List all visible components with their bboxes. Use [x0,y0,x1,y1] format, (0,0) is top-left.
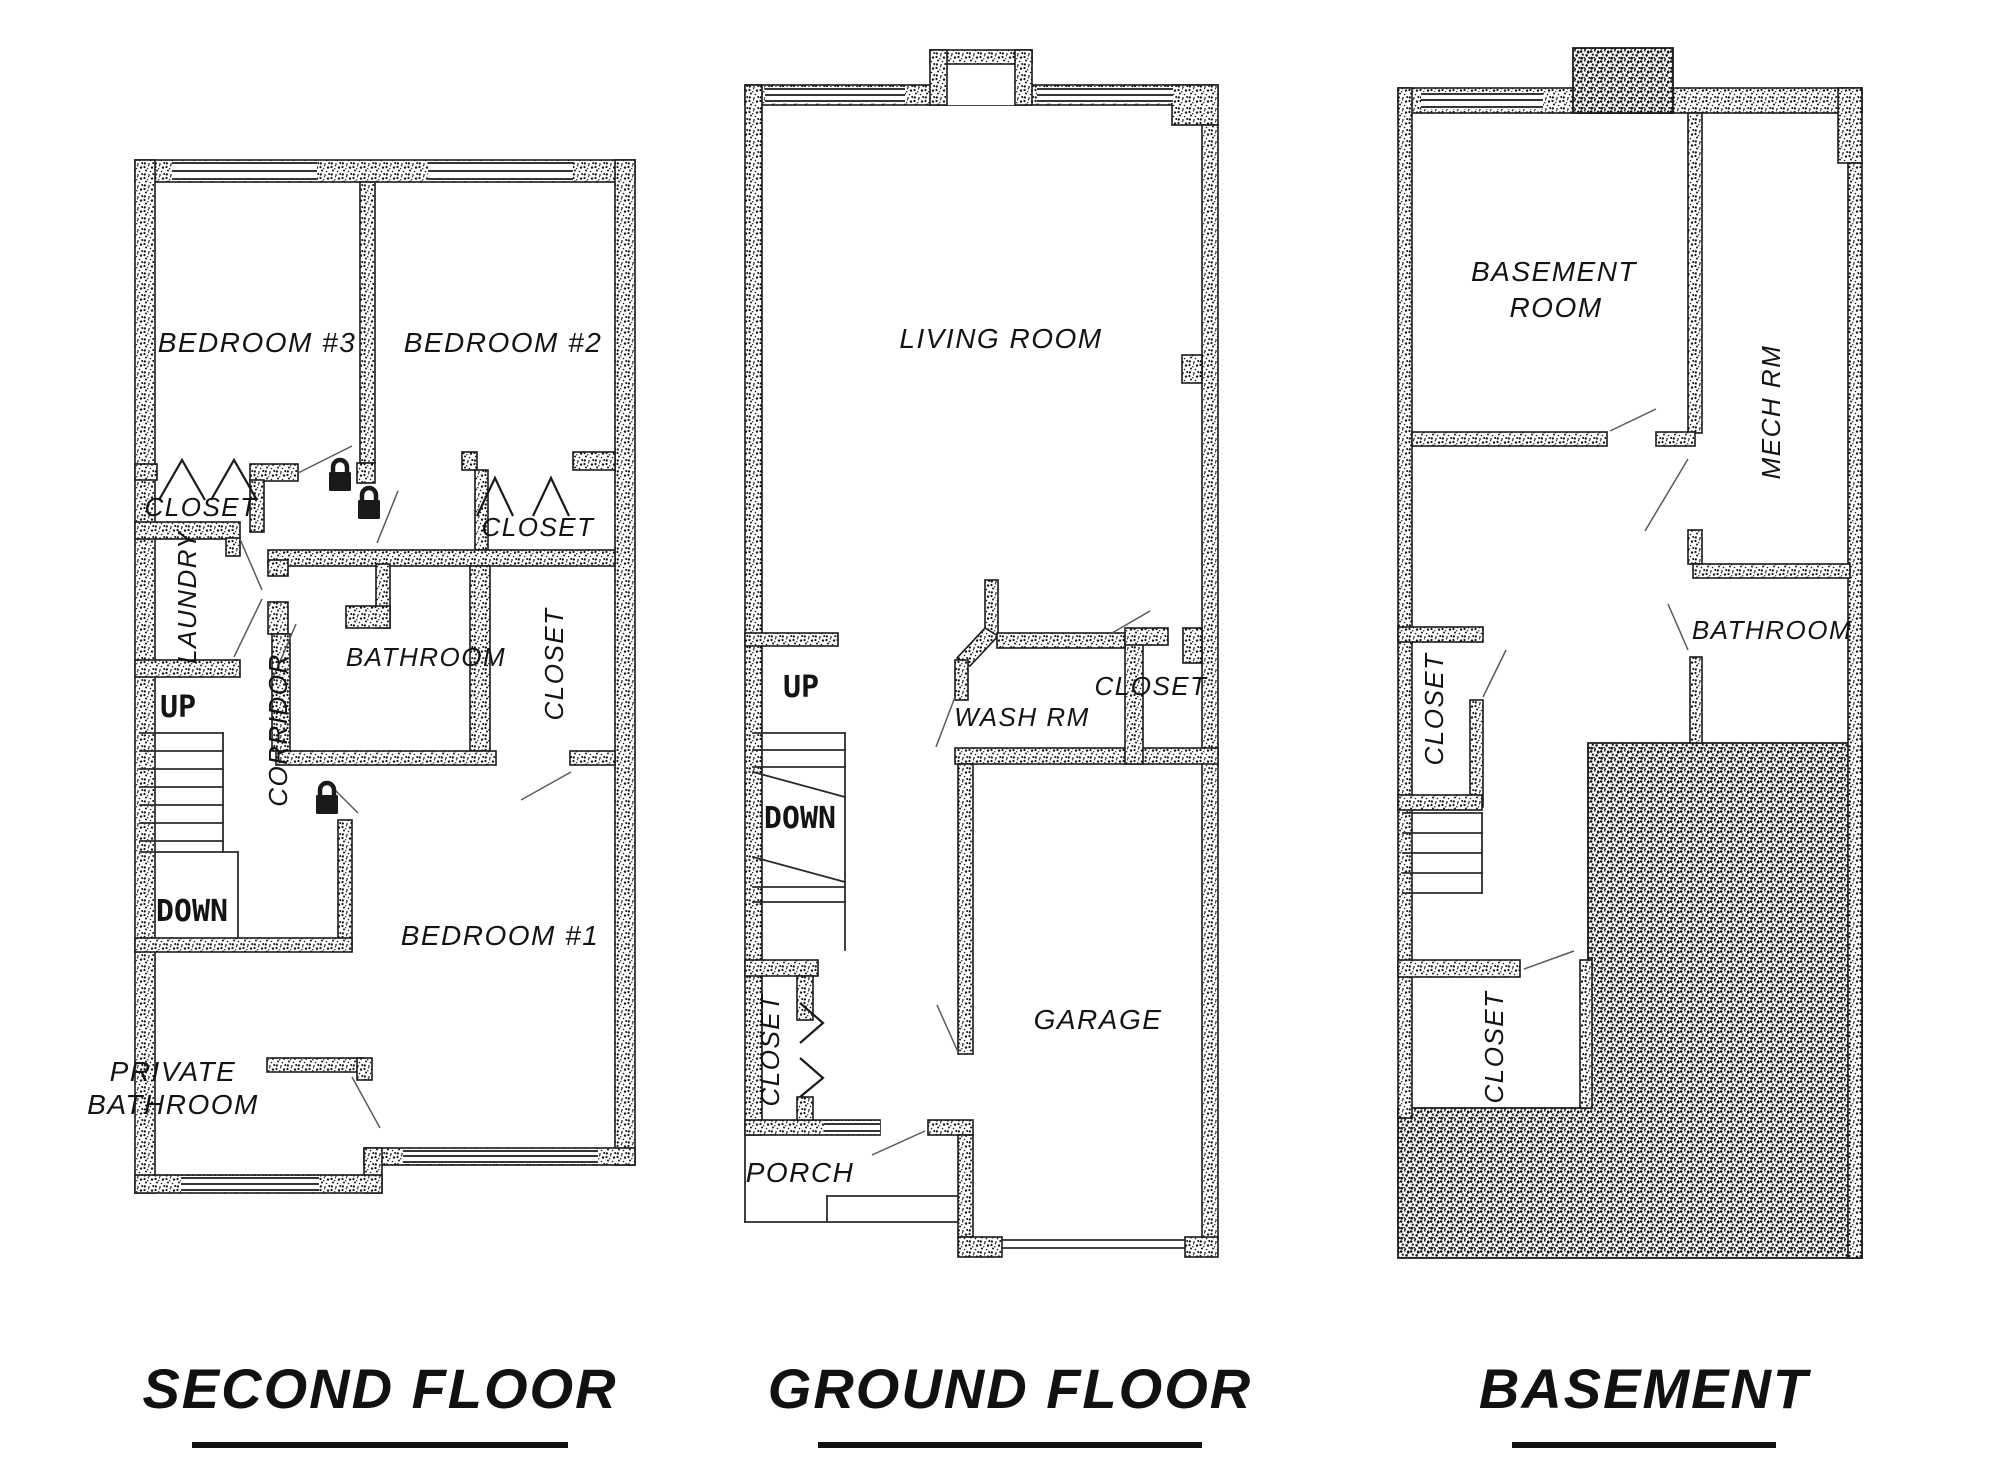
door-leaf-line [1483,650,1506,697]
label-bathroom: BATHROOM [346,642,506,672]
door-leaf-line [1668,604,1688,650]
label-bedroom-2: BEDROOM #2 [404,327,603,358]
window-symbol [181,1176,319,1192]
label-closet: CLOSET [755,993,785,1107]
label-closet: CLOSET [1419,652,1449,766]
label-mech-rm: MECH RM [1756,345,1786,480]
label-corridor: CORRIDOR [263,653,293,807]
second-floor-plan: BEDROOM #3BEDROOM #2CLOSETLAUNDRYCORRIDO… [87,160,635,1193]
label-basement: BASEMENT [1471,256,1637,287]
chevron-door-symbol [800,1058,823,1097]
stair-treads [1403,813,1482,893]
window-symbol [172,161,317,181]
padlock-icon [329,460,351,491]
label-closet: CLOSET [144,492,258,522]
door-leaf-line [1524,951,1574,969]
label-closet: CLOSET [1479,990,1509,1104]
door-leaf-line [1610,409,1656,431]
label-porch: PORCH [746,1157,855,1188]
door-leaf-line [936,697,955,747]
label-down: DOWN [156,894,228,929]
stair-break-line [753,857,845,882]
label-bedroom-1: BEDROOM #1 [401,920,600,951]
door-leaf-line [234,599,262,657]
label-living-room: LIVING ROOM [899,323,1102,354]
door-leaf-line [335,790,358,813]
label-bathroom: BATHROOM [1692,615,1852,645]
floor-plan-sheet: BEDROOM #3BEDROOM #2CLOSETLAUNDRYCORRIDO… [0,0,2000,1471]
label-up: UP [160,690,196,725]
window-symbol [1421,92,1543,109]
label-bedroom-3: BEDROOM #3 [158,327,357,358]
door-leaf-line [1645,459,1688,531]
bs-stairs [1403,813,1482,893]
gf-stairs [753,733,845,950]
floor-plans-drawing: BEDROOM #3BEDROOM #2CLOSETLAUNDRYCORRIDO… [0,0,2000,1471]
floor-titles: SECOND FLOOR GROUND FLOOR BASEMENT [142,1357,1811,1445]
title-basement: BASEMENT [1479,1357,1812,1420]
bs-walls [1398,48,1862,1258]
padlock-icon [316,783,338,814]
padlock-icon [358,488,380,519]
gf-garage-door [1002,1240,1185,1248]
label-up: UP [783,670,819,705]
window-symbol [428,161,573,181]
label-down: DOWN [764,801,836,836]
door-leaf-line [352,1077,380,1128]
unexcavated-area [1398,743,1862,1258]
label-closet: CLOSET [1094,671,1208,701]
label-garage: GARAGE [1034,1004,1163,1035]
title-second-floor: SECOND FLOOR [142,1357,617,1420]
label-wash-rm: WASH RM [954,702,1090,732]
bs-windows [1421,92,1543,109]
label-closet: CLOSET [539,607,569,721]
label-bathroom: BATHROOM [87,1089,259,1120]
ground-floor-plan: LIVING ROOMUPDOWNWASH RMCLOSETGARAGECLOS… [745,50,1218,1257]
chevron-door-symbol [533,478,569,516]
sf-room-labels: BEDROOM #3BEDROOM #2CLOSETLAUNDRYCORRIDO… [87,327,602,1120]
label-closet: CLOSET [481,512,595,542]
window-symbol [824,1121,880,1134]
window-symbol [1037,87,1173,103]
chimney-solid [1573,48,1673,113]
label-private: PRIVATE [110,1056,237,1087]
label-laundry: LAUNDRY [172,530,202,664]
door-leaf-line [240,539,262,590]
window-symbol [403,1149,598,1164]
title-ground-floor: GROUND FLOOR [768,1357,1252,1420]
stair-break-line [753,772,845,797]
label-room: ROOM [1509,292,1602,323]
gf-walls [745,50,1218,1257]
door-leaf-line [937,1005,958,1052]
basement-plan: BASEMENTROOMMECH RMBATHROOMCLOSETCLOSET [1398,48,1862,1258]
door-leaf-line [377,491,398,543]
window-symbol [765,87,905,103]
door-leaf-line [521,772,571,800]
